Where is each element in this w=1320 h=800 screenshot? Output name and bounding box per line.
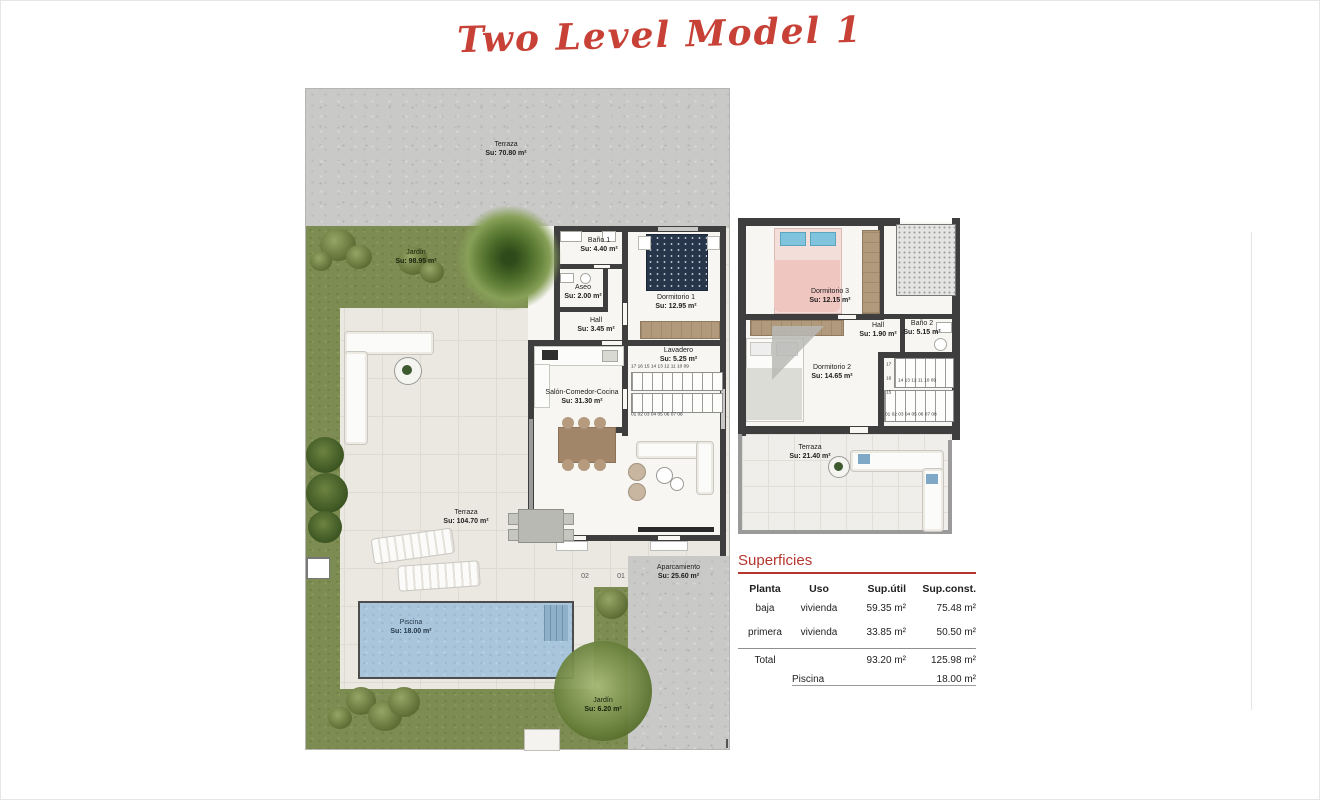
stair-number: 16 <box>886 376 891 381</box>
chair <box>508 529 519 541</box>
aseo-sink <box>560 273 574 283</box>
table-row-piscina: Piscina 18.00 m² <box>738 674 976 686</box>
table-title-rule <box>738 572 976 574</box>
kitchen-sink <box>602 350 618 362</box>
chair <box>508 513 519 525</box>
stair-numbers: 17 16 15 14 13 12 11 10 09 <box>631 364 689 369</box>
wall-segment <box>720 535 726 556</box>
pillow <box>810 232 836 246</box>
boundary-window <box>306 557 330 579</box>
chair <box>562 417 574 429</box>
parking-spot-label: 02 <box>578 573 592 582</box>
page-title: Two Level Model 1 <box>0 0 1320 73</box>
door-gap <box>838 315 856 319</box>
entry-step <box>650 541 688 551</box>
dining-table <box>558 427 616 463</box>
chair <box>578 417 590 429</box>
parking-area <box>628 556 729 749</box>
room-label-salon: Salón-Comedor-Cocina Su: 31.30 m² <box>539 389 625 407</box>
plant-pot <box>834 462 843 471</box>
plant-pot <box>402 365 412 375</box>
toilet <box>580 273 591 284</box>
stair-number: 17 <box>886 362 891 367</box>
pool <box>358 601 574 679</box>
door-gap <box>658 536 680 540</box>
nightstand <box>638 236 651 250</box>
tick-mark <box>726 739 728 748</box>
room-label-lavadero: Lavadero Su: 5.25 m² <box>636 347 721 365</box>
outdoor-sofa <box>344 351 368 445</box>
chair <box>594 417 606 429</box>
tree <box>306 437 344 473</box>
outdoor-dining-table <box>518 509 564 543</box>
armchair <box>628 463 646 481</box>
table-row-baja: baja vivienda 59.35 m² 75.48 m² <box>738 603 976 614</box>
nightstand <box>707 236 720 250</box>
wall-segment <box>738 218 900 226</box>
chair <box>563 513 574 525</box>
glass-door <box>529 419 533 514</box>
tree <box>308 511 342 543</box>
room-label-dormitorio3: Dormitorio 3 Su: 12.15 m² <box>795 288 865 306</box>
room-label-terraza-top: Terraza Su: 70.80 m² <box>471 141 541 159</box>
wardrobe <box>640 321 720 339</box>
tv-sideboard <box>638 527 714 532</box>
wall-segment <box>884 314 954 319</box>
room-label-bano1: Baño 1 Su: 4.40 m² <box>574 237 624 255</box>
pillow <box>780 232 806 246</box>
ground-floor-plan: 17 16 15 14 13 12 11 10 09 01 02 03 04 0… <box>305 88 730 750</box>
room-label-jardin: Jardín Su: 98.95 m² <box>381 249 451 267</box>
first-floor-plan: 17 16 15 14 13 12 11 10 09 01 02 03 04 0… <box>738 218 970 550</box>
wall-segment <box>554 307 608 312</box>
bush <box>388 687 420 717</box>
room-label-bano2: Baño 2 Su: 5.15 m² <box>896 320 948 338</box>
room-label-hall: Hall Su: 3.45 m² <box>571 317 621 335</box>
coffee-table <box>670 477 684 491</box>
table-header-row: Planta Uso Sup.útil Sup.const. <box>738 583 976 595</box>
bush <box>310 251 332 271</box>
room-label-terraza-upper: Terraza Su: 21.40 m² <box>778 444 842 462</box>
roof-void-hatch <box>896 224 956 296</box>
upper-terrace <box>742 434 952 534</box>
bush <box>328 707 352 729</box>
table-row-total: Total 93.20 m² 125.98 m² <box>738 655 976 666</box>
table-title: Superficies <box>738 552 976 569</box>
stair-number: 15 <box>886 390 891 395</box>
door-gap <box>623 303 627 325</box>
chair <box>578 459 590 471</box>
wall-segment <box>738 426 960 434</box>
cushion <box>858 454 870 464</box>
stair-flight <box>631 393 723 413</box>
terrace-wall <box>948 440 952 534</box>
stair-flight <box>631 372 723 391</box>
chair <box>562 459 574 471</box>
chair <box>594 459 606 471</box>
stair-numbers: 01 02 03 04 05 06 07 08 <box>631 412 683 417</box>
room-label-aparcamiento: Aparcamiento Su: 25.60 m² <box>636 564 721 582</box>
piscina-value: 18.00 m² <box>822 674 976 685</box>
room-label-piscina: Piscina Su: 18.00 m² <box>366 619 456 637</box>
palm-tree <box>456 205 562 311</box>
floorplan-page: Two Level Model 1 <box>0 0 1320 800</box>
door-gap <box>594 265 610 268</box>
chair <box>563 529 574 541</box>
toilet <box>934 338 947 351</box>
room-label-aseo: Aseo Su: 2.00 m² <box>561 284 605 302</box>
cushion <box>926 474 938 484</box>
parking-spot-label: 01 <box>614 573 628 582</box>
total-const: 125.98 m² <box>906 655 976 666</box>
door-gap <box>850 427 868 433</box>
entry-path <box>524 729 560 751</box>
bed-dormitorio-1 <box>646 234 708 291</box>
room-label-hall-upper: Hall Su: 1.90 m² <box>856 322 900 340</box>
living-sofa <box>696 441 714 495</box>
room-label-terraza-main: Terraza Su: 104.70 m² <box>431 509 501 527</box>
stair-flight <box>884 390 954 422</box>
scan-artifact-line <box>1251 232 1252 710</box>
header-sup-util: Sup.útil <box>846 583 906 595</box>
room-label-dormitorio1: Dormitorio 1 Su: 12.95 m² <box>636 294 716 312</box>
wall-segment <box>554 264 628 269</box>
wall-segment <box>738 218 746 436</box>
total-util: 93.20 m² <box>846 655 906 666</box>
terrace-wall <box>738 530 952 534</box>
room-label-dormitorio2: Dormitorio 2 Su: 14.65 m² <box>797 364 867 382</box>
bush <box>346 245 372 269</box>
window <box>658 227 698 231</box>
terrace-wall <box>738 434 742 534</box>
pool-steps <box>544 605 568 641</box>
superficies-table: Superficies Planta Uso Sup.útil Sup.cons… <box>738 552 976 686</box>
stair-numbers: 01 02 03 04 05 06 07 08 <box>885 412 937 417</box>
total-label: Total <box>738 655 792 666</box>
table-divider <box>738 648 976 649</box>
piscina-label: Piscina <box>792 674 822 685</box>
table-row-primera: primera vivienda 33.85 m² 50.50 m² <box>738 627 976 638</box>
door-gap <box>602 341 622 345</box>
stair-flight <box>894 358 954 388</box>
piscina-leader: Piscina 18.00 m² <box>792 674 976 686</box>
large-tree <box>554 641 652 741</box>
room-label-jardin-bottom: Jardín Su: 6.20 m² <box>568 697 638 715</box>
armchair <box>628 483 646 501</box>
pillow <box>750 342 772 356</box>
header-planta: Planta <box>738 583 792 595</box>
header-sup-const: Sup.const. <box>906 583 976 595</box>
stair-numbers: 14 13 12 11 10 09 <box>898 378 936 383</box>
bush <box>596 589 628 619</box>
tree <box>306 473 348 513</box>
cooktop <box>542 350 558 360</box>
header-uso: Uso <box>792 583 846 595</box>
